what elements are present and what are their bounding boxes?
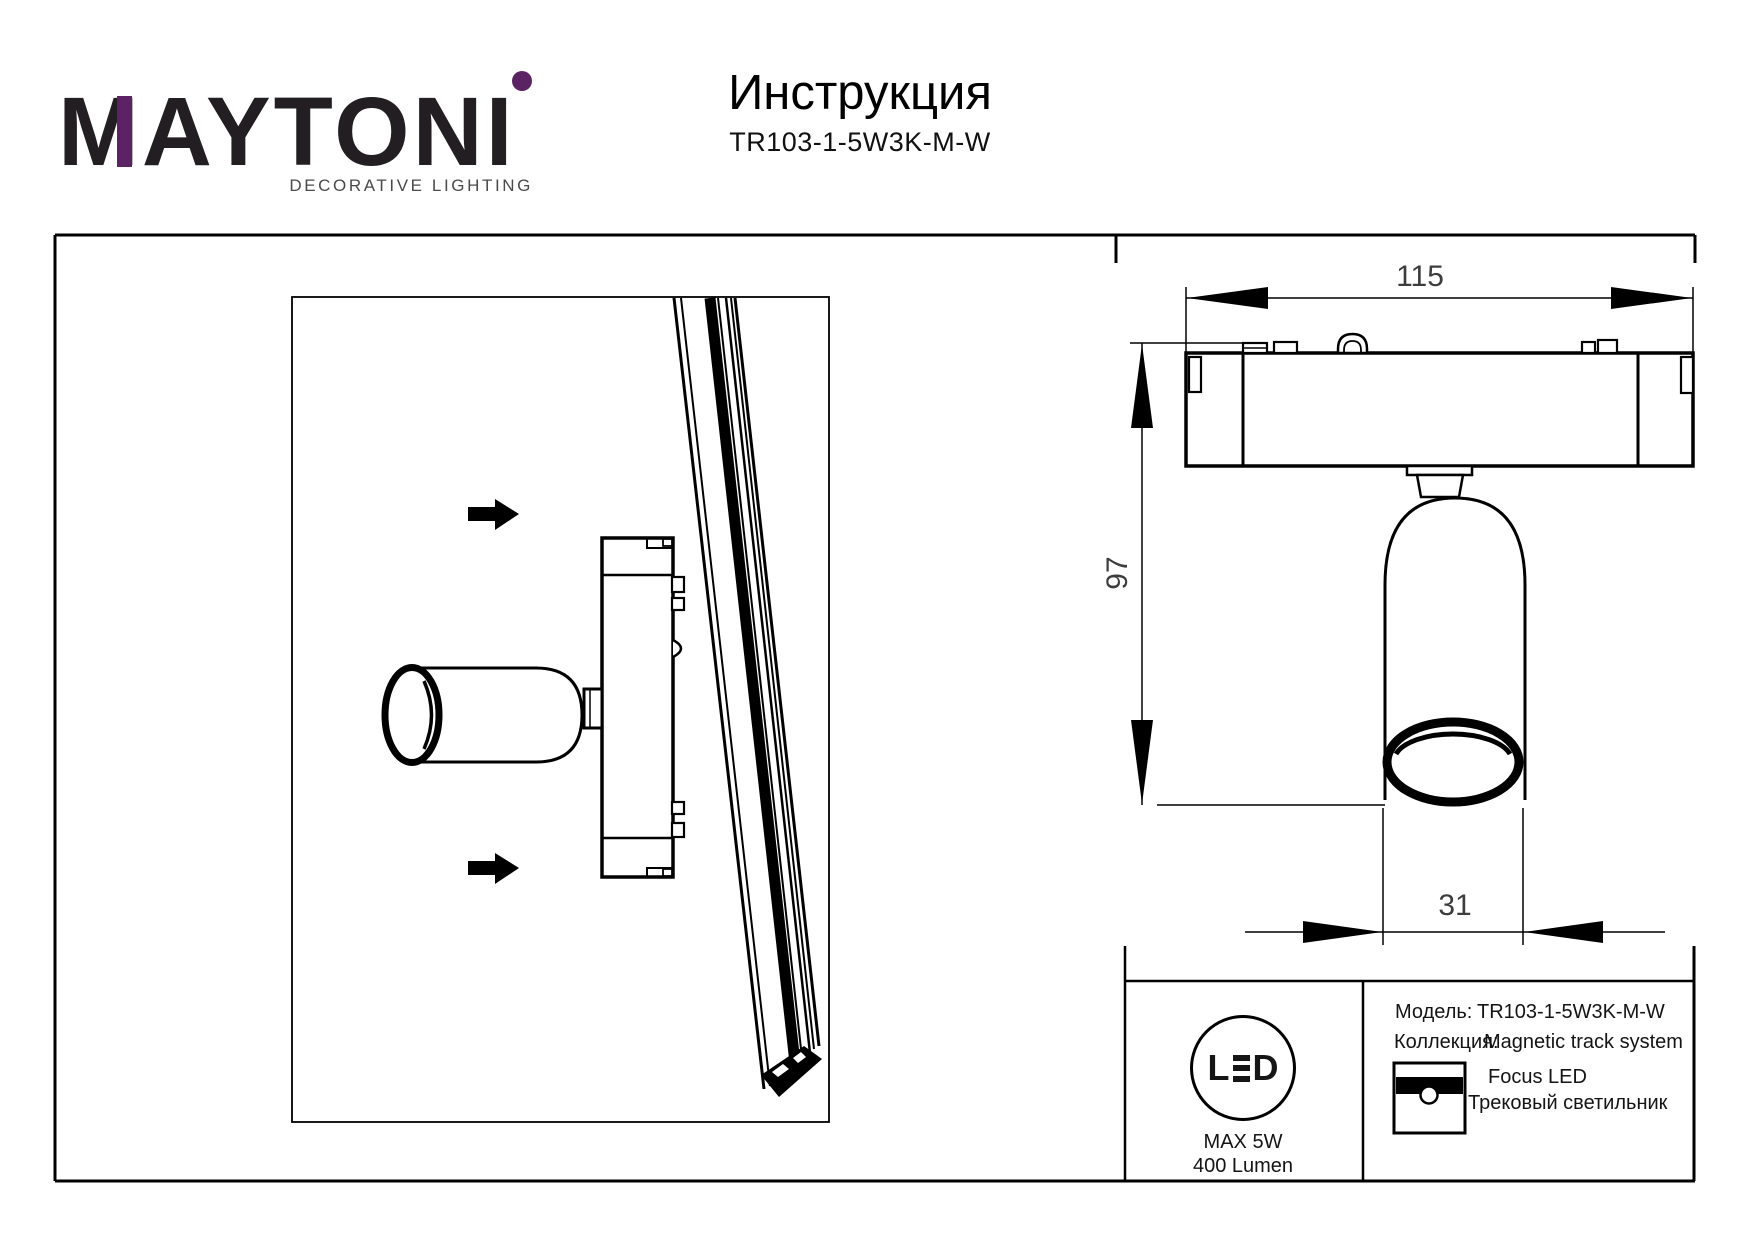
product-type: Трековый светильник — [1468, 1092, 1667, 1114]
collection-value: Magnetic track system — [1484, 1031, 1683, 1053]
direction-arrow-icon — [468, 853, 519, 884]
page-title: Инструкция — [510, 69, 1210, 118]
direction-arrow-icon — [468, 499, 519, 530]
led-letter-l: L — [1208, 1050, 1230, 1086]
title-block: Инструкция TR103-1-5W3K-M-W — [510, 69, 1210, 156]
spotlight-front — [1385, 466, 1525, 802]
model-label: Модель: — [1395, 1001, 1472, 1023]
led-letter-d: D — [1253, 1050, 1279, 1086]
instruction-sheet: MAYTONI DECORATIVE LIGHTING Инструкция T… — [0, 0, 1754, 1241]
dimension-height-label: 97 — [1103, 523, 1133, 623]
brand-letters-mid: AYTON — [142, 77, 486, 186]
model-value: TR103-1-5W3K-M-W — [1477, 1001, 1665, 1023]
collection-label: Коллекция: — [1394, 1031, 1499, 1053]
dimension-diameter — [1245, 808, 1665, 945]
magnetic-track-side — [674, 298, 822, 1097]
spotlight-side — [385, 668, 602, 763]
led-badge: L D — [1190, 1015, 1296, 1121]
brand-accent-bar — [117, 96, 132, 167]
dimension-diameter-label: 31 — [1395, 891, 1515, 921]
series-name: Focus LED — [1488, 1066, 1587, 1088]
luminous-flux-label: 400 Lumen — [1153, 1155, 1333, 1177]
dimension-width-label: 115 — [1360, 262, 1480, 292]
max-power-label: MAX 5W — [1153, 1131, 1333, 1153]
brand-tagline: DECORATIVE LIGHTING — [233, 177, 533, 194]
track-module-front — [1186, 334, 1693, 466]
track-light-icon — [1394, 1063, 1465, 1133]
header-model-code: TR103-1-5W3K-M-W — [510, 129, 1210, 156]
led-bars-icon — [1233, 1055, 1250, 1082]
track-module-side — [602, 538, 684, 877]
